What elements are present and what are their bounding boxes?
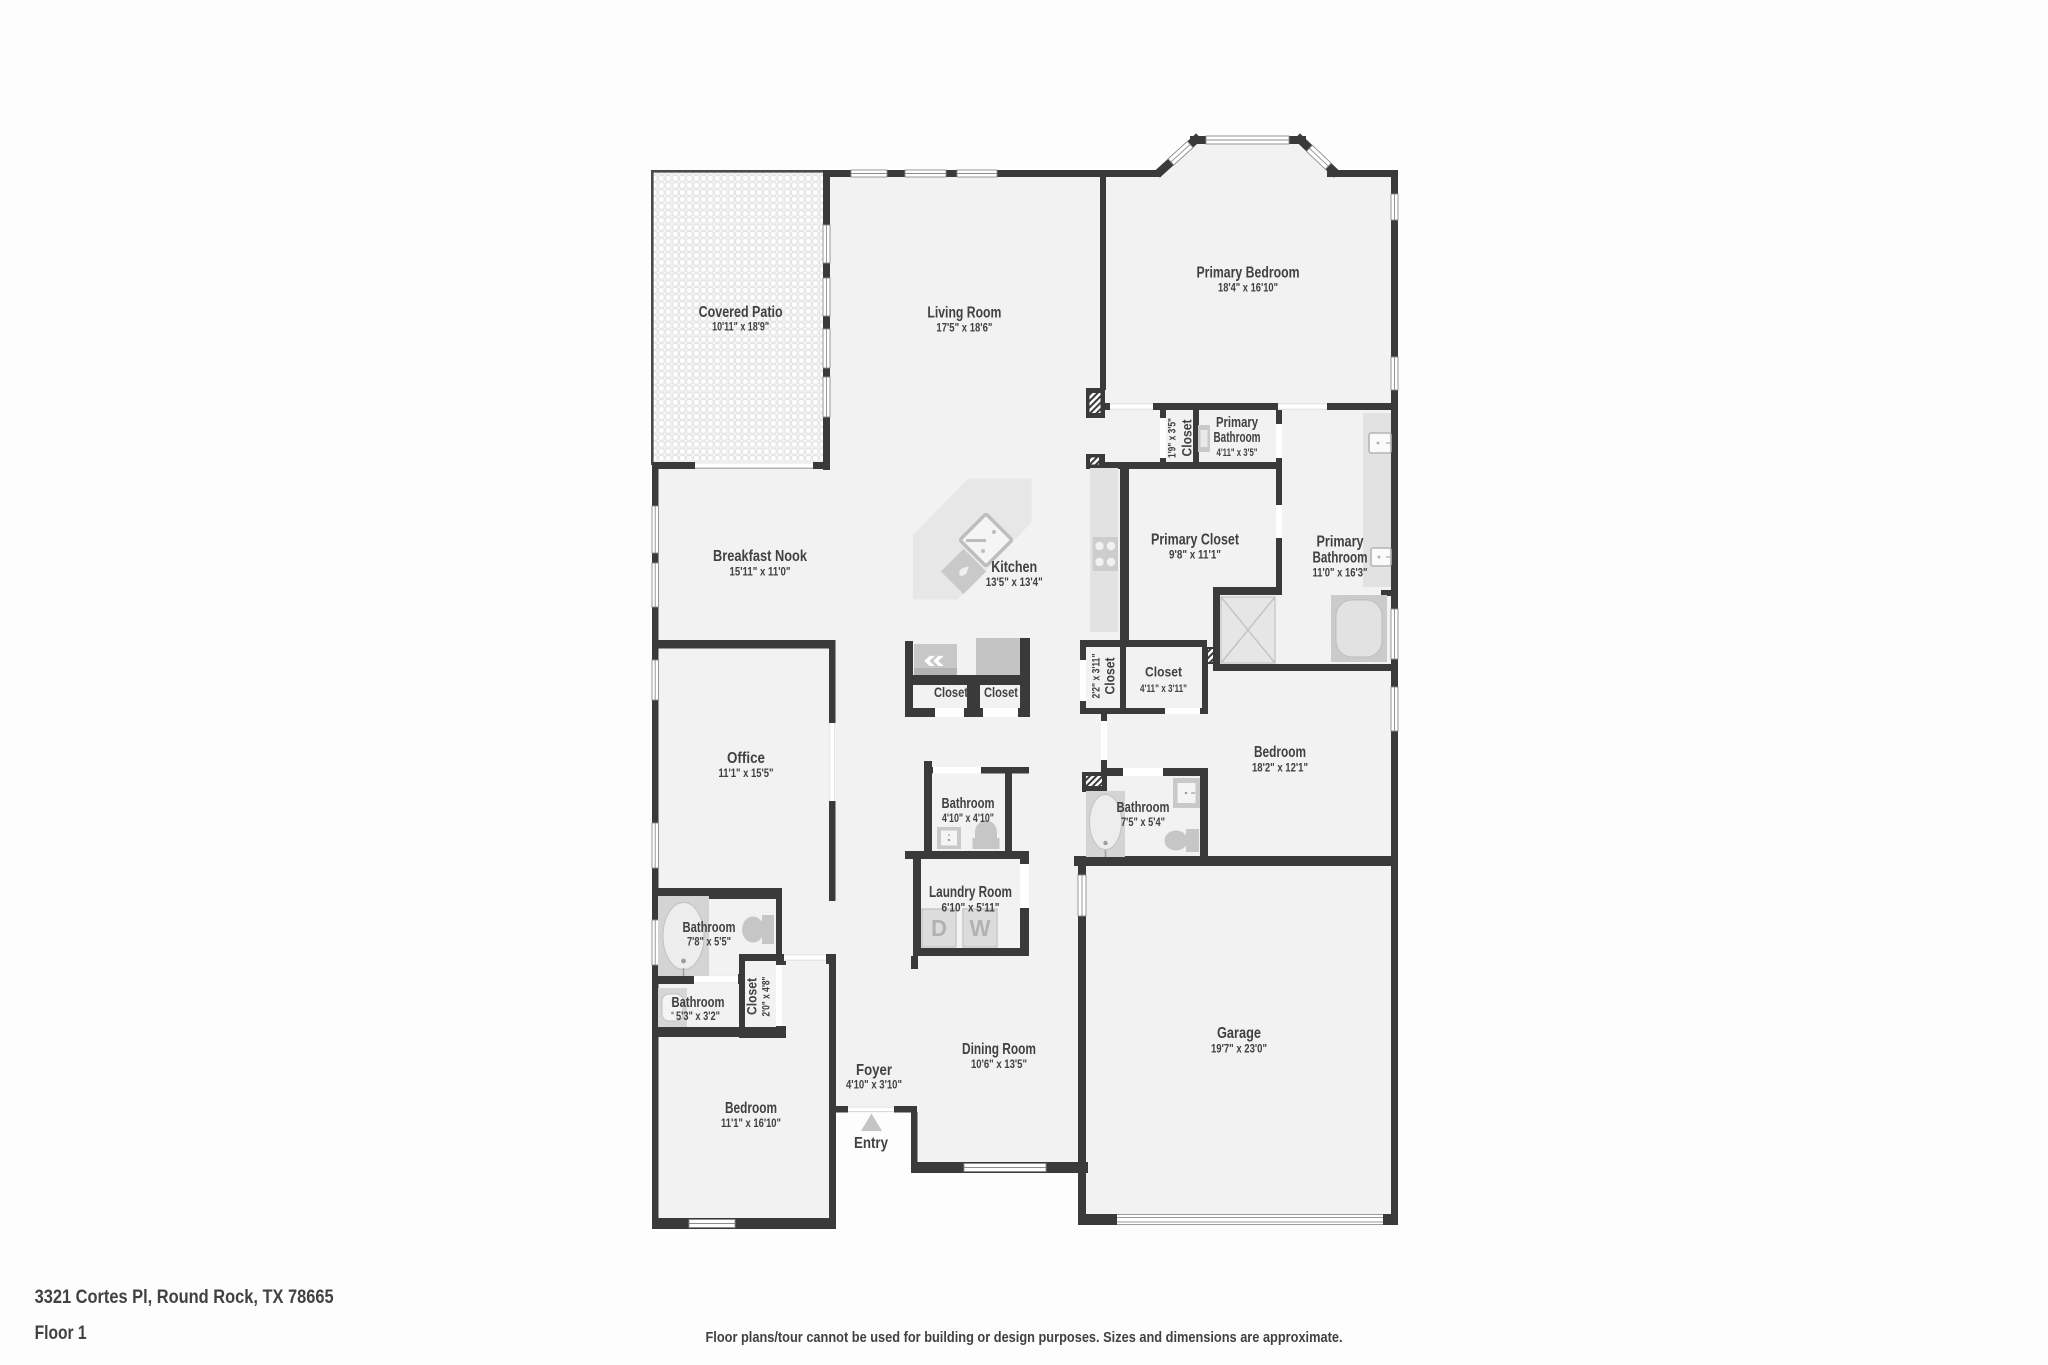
svg-text:Dining Room: Dining Room [962, 1041, 1036, 1058]
svg-text:D: D [931, 915, 947, 941]
svg-text:Closet: Closet [1179, 419, 1195, 456]
svg-text:10'11" x 18'9": 10'11" x 18'9" [712, 320, 769, 334]
svg-text:Closet: Closet [744, 978, 760, 1015]
svg-text:Kitchen: Kitchen [991, 559, 1037, 576]
svg-text:1'9" x 3'5": 1'9" x 3'5" [1167, 418, 1179, 458]
svg-text:Foyer: Foyer [856, 1062, 892, 1079]
svg-text:Office: Office [727, 750, 765, 767]
svg-text:11'1" x 16'10": 11'1" x 16'10" [721, 1116, 781, 1130]
svg-text:Bedroom: Bedroom [1254, 744, 1306, 761]
svg-text:2'0" x 4'8": 2'0" x 4'8" [761, 977, 773, 1017]
svg-text:Primary: Primary [1216, 415, 1258, 431]
svg-text:17'5" x 18'6": 17'5" x 18'6" [936, 321, 992, 335]
svg-text:7'5" x 5'4": 7'5" x 5'4" [1121, 817, 1165, 829]
svg-text:9'8" x 11'1": 9'8" x 11'1" [1169, 548, 1221, 562]
svg-text:W: W [970, 915, 991, 941]
svg-text:Primary Closet: Primary Closet [1151, 532, 1240, 549]
svg-text:18'2" x 12'1": 18'2" x 12'1" [1252, 761, 1308, 775]
svg-text:«: « [923, 644, 945, 674]
svg-text:15'11" x 11'0": 15'11" x 11'0" [730, 565, 791, 579]
svg-text:Closet: Closet [1145, 664, 1182, 680]
svg-text:Primary: Primary [1317, 534, 1364, 551]
svg-text:4'10" x 3'10": 4'10" x 3'10" [846, 1078, 902, 1092]
svg-text:18'4" x 16'10": 18'4" x 16'10" [1218, 281, 1278, 295]
svg-text:Primary Bedroom: Primary Bedroom [1197, 265, 1300, 282]
svg-text:Breakfast Nook: Breakfast Nook [713, 548, 807, 565]
svg-text:Garage: Garage [1217, 1025, 1261, 1042]
svg-text:Floor plans/tour cannot be use: Floor plans/tour cannot be used for buil… [706, 1330, 1343, 1346]
svg-text:Bathroom: Bathroom [672, 994, 725, 1011]
svg-text:19'7" x 23'0": 19'7" x 23'0" [1211, 1042, 1267, 1056]
svg-text:6'10" x 5'11": 6'10" x 5'11" [942, 901, 1000, 915]
svg-text:2'2" x 3'11": 2'2" x 3'11" [1091, 654, 1103, 699]
svg-text:Bathroom: Bathroom [942, 795, 995, 812]
svg-text:Floor 1: Floor 1 [35, 1323, 87, 1344]
svg-text:Laundry Room: Laundry Room [929, 884, 1012, 901]
svg-text:Bathroom: Bathroom [683, 919, 736, 936]
svg-text:4'10" x 4'10": 4'10" x 4'10" [942, 813, 994, 825]
svg-text:Entry: Entry [854, 1135, 888, 1152]
svg-text:4'11" x 3'11": 4'11" x 3'11" [1140, 683, 1187, 695]
svg-text:Closet: Closet [934, 685, 968, 700]
svg-text:11'1" x 15'5": 11'1" x 15'5" [719, 766, 774, 780]
svg-text:3321 Cortes Pl, Round Rock, TX: 3321 Cortes Pl, Round Rock, TX 78665 [35, 1287, 334, 1308]
svg-text:10'6" x 13'5": 10'6" x 13'5" [971, 1057, 1027, 1071]
svg-text:Closet: Closet [1102, 657, 1118, 694]
svg-text:Covered Patio: Covered Patio [699, 304, 783, 321]
svg-text:5'3" x 3'2": 5'3" x 3'2" [676, 1011, 720, 1023]
svg-text:Closet: Closet [984, 685, 1018, 700]
svg-text:Bathroom: Bathroom [1117, 799, 1170, 816]
svg-text:Bathroom: Bathroom [1214, 430, 1261, 446]
svg-text:4'11" x 3'5": 4'11" x 3'5" [1217, 447, 1258, 459]
svg-text:11'0" x 16'3": 11'0" x 16'3" [1313, 566, 1368, 580]
svg-text:13'5" x 13'4": 13'5" x 13'4" [986, 575, 1043, 589]
svg-text:7'8" x 5'5": 7'8" x 5'5" [687, 937, 731, 949]
svg-text:Bedroom: Bedroom [725, 1100, 777, 1117]
svg-text:Living Room: Living Room [927, 305, 1001, 322]
svg-text:Bathroom: Bathroom [1313, 550, 1368, 567]
